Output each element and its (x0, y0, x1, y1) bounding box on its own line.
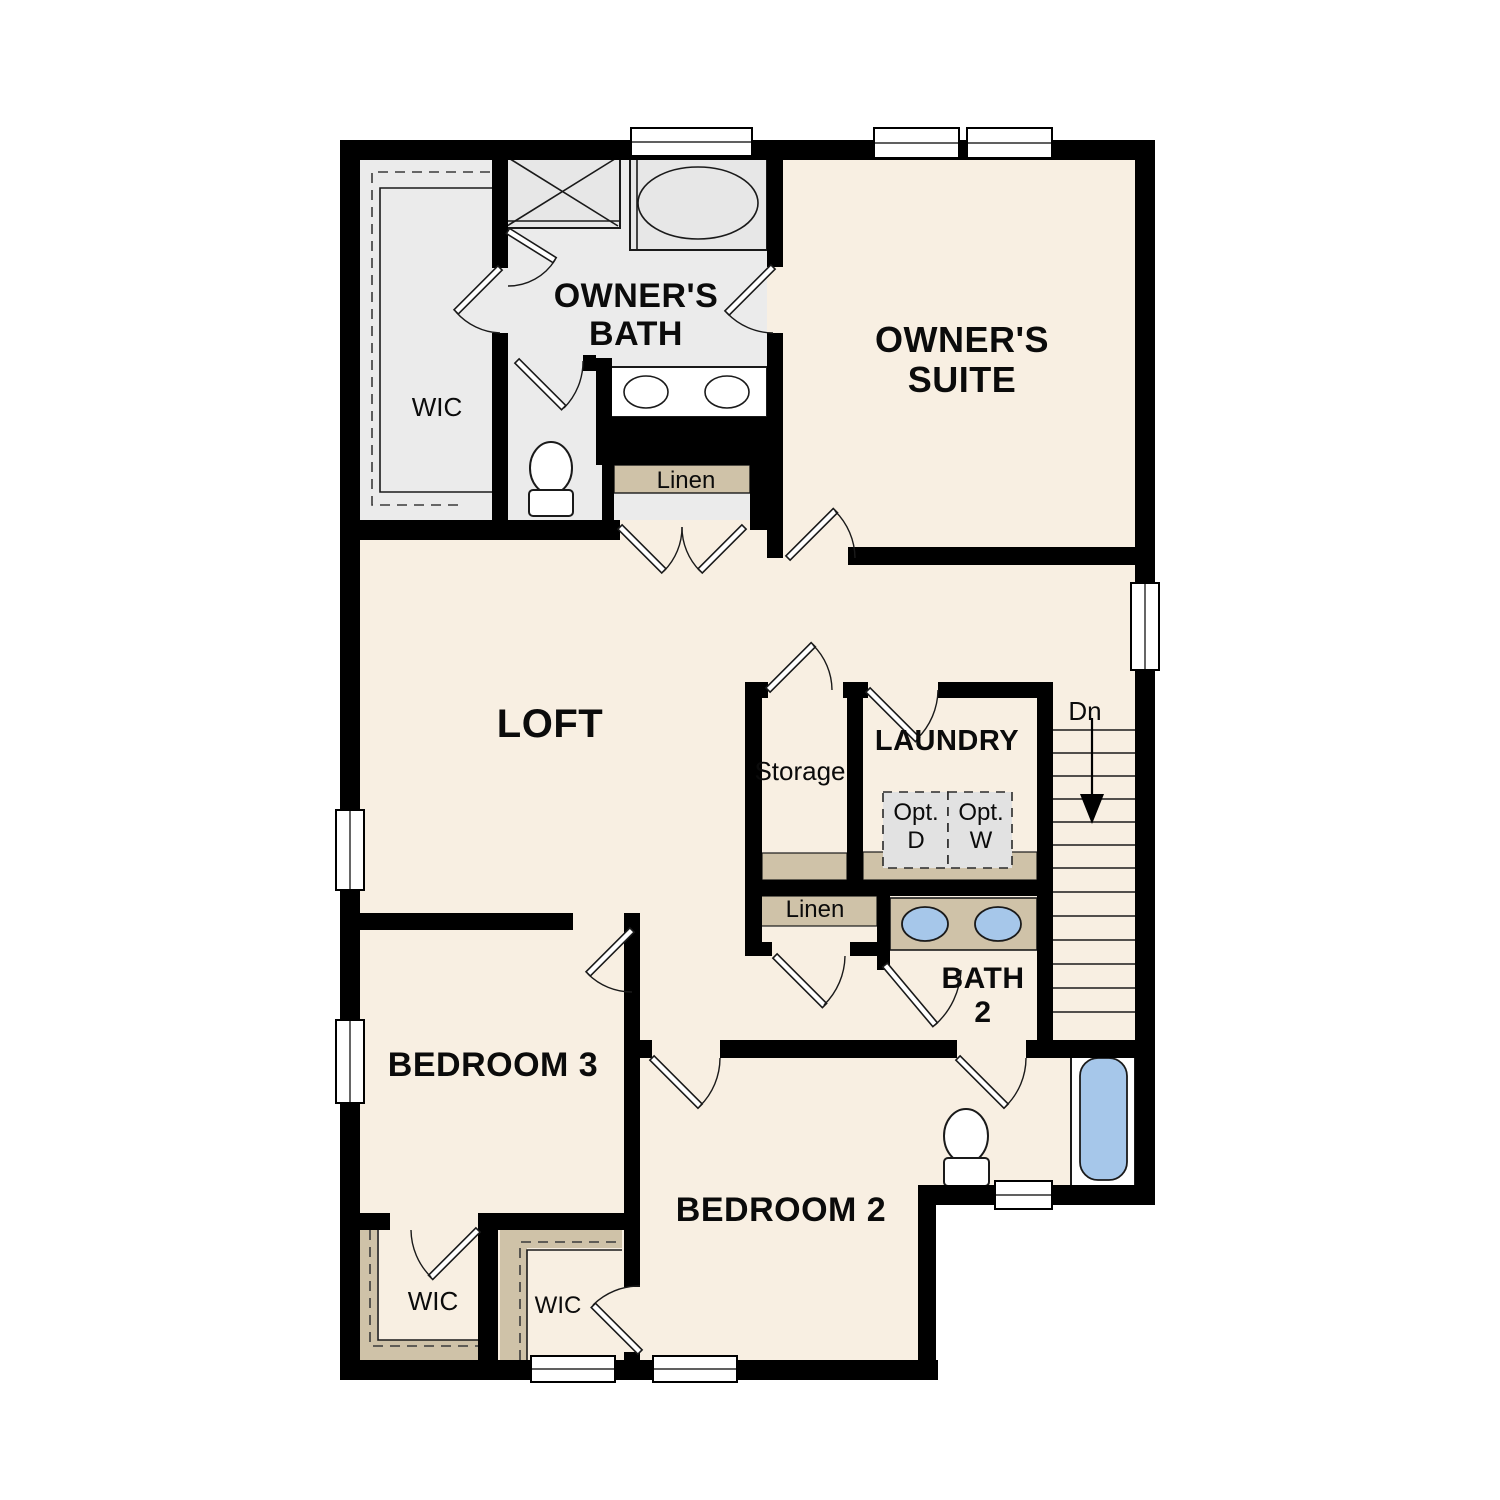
label-wic-owner: WIC (412, 392, 463, 422)
window-bedroom3 (336, 1020, 364, 1103)
storage-shelf (762, 853, 847, 880)
label-bath2-line2: 2 (974, 996, 991, 1029)
label-opt-dryer-line2: D (907, 827, 924, 854)
label-owners-suite-line1: OWNER'S (875, 319, 1049, 360)
window-bedroom2-2 (653, 1356, 737, 1382)
window-owners-suite-1 (874, 128, 959, 158)
label-stairs-down: Dn (1068, 696, 1101, 726)
label-linen-lower: Linen (786, 896, 845, 923)
label-bath2-line1: BATH (941, 962, 1024, 995)
window-owners-bath (631, 128, 752, 156)
label-wic-bedroom2: WIC (535, 1292, 582, 1319)
window-bath2 (995, 1181, 1052, 1209)
window-bedroom2-1 (531, 1356, 615, 1382)
label-opt-washer-line2: W (970, 827, 993, 854)
label-loft: LOFT (497, 702, 603, 746)
label-storage: Storage (754, 756, 845, 786)
label-bedroom3: BEDROOM 3 (388, 1046, 598, 1084)
window-loft (336, 810, 364, 890)
label-owners-bath-line2: BATH (589, 315, 683, 353)
label-owners-suite-line2: SUITE (908, 359, 1017, 400)
label-bedroom2: BEDROOM 2 (676, 1191, 886, 1229)
label-wic-bedroom3: WIC (408, 1286, 459, 1316)
label-owners-bath-line1: OWNER'S (554, 277, 719, 315)
label-opt-dryer-line1: Opt. (893, 799, 938, 826)
owners-bath-vanity (605, 367, 767, 417)
garden-tub (630, 155, 767, 250)
shower (505, 155, 620, 228)
window-stair-landing (1131, 583, 1159, 670)
owners-toilet (529, 442, 573, 516)
label-laundry: LAUNDRY (875, 725, 1019, 757)
window-owners-suite-2 (967, 128, 1052, 158)
bath2-toilet (944, 1109, 989, 1186)
bath2-tub (1071, 1048, 1135, 1188)
label-linen-upper: Linen (657, 467, 716, 494)
label-opt-washer-line1: Opt. (958, 799, 1003, 826)
floor-plan-page: OWNER'S BATH OWNER'S SUITE WIC Linen LOF… (0, 0, 1500, 1500)
floor-plan: OWNER'S BATH OWNER'S SUITE WIC Linen LOF… (0, 0, 1500, 1500)
